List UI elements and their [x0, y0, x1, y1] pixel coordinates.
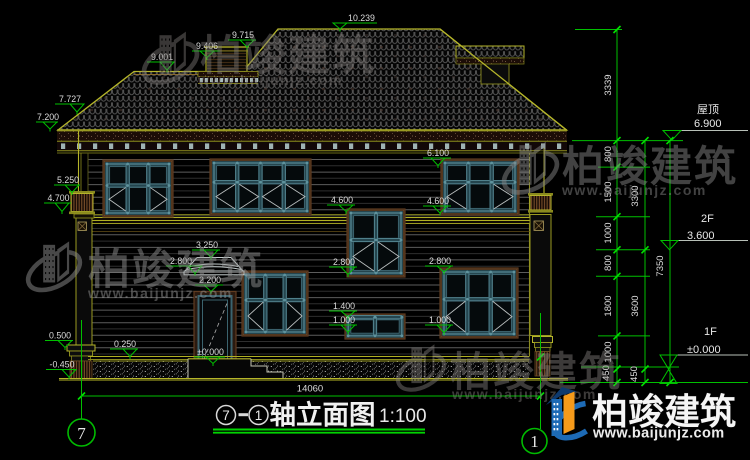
- svg-text:1: 1: [530, 432, 539, 451]
- svg-text:7.727: 7.727: [59, 94, 81, 104]
- svg-text:3600: 3600: [630, 295, 641, 316]
- svg-text:www.baijunjz.com: www.baijunjz.com: [87, 285, 233, 301]
- svg-text:450: 450: [629, 366, 640, 382]
- svg-text:-0.450: -0.450: [50, 359, 75, 369]
- svg-text:1:100: 1:100: [379, 406, 427, 427]
- svg-text:7: 7: [222, 408, 230, 423]
- svg-text:6.100: 6.100: [427, 148, 449, 158]
- svg-text:1800: 1800: [603, 295, 614, 316]
- svg-text:7.200: 7.200: [37, 112, 59, 122]
- svg-text:0.500: 0.500: [49, 330, 71, 340]
- svg-text:2F: 2F: [701, 213, 714, 225]
- svg-text:6.900: 6.900: [694, 118, 722, 130]
- svg-text:www.baijunjz.com: www.baijunjz.com: [592, 426, 725, 442]
- svg-text:2.800: 2.800: [429, 256, 451, 266]
- svg-text:1.000: 1.000: [333, 315, 355, 325]
- svg-text:14060: 14060: [297, 384, 323, 395]
- svg-text:800: 800: [603, 255, 614, 271]
- svg-text:4.600: 4.600: [427, 196, 449, 206]
- svg-text:1000: 1000: [603, 222, 614, 243]
- svg-text:1.400: 1.400: [333, 301, 355, 311]
- svg-text:1.000: 1.000: [429, 315, 451, 325]
- svg-text:10.239: 10.239: [348, 13, 375, 23]
- svg-text:4.700: 4.700: [47, 193, 69, 203]
- svg-text:1F: 1F: [704, 326, 717, 338]
- svg-text:4.600: 4.600: [331, 195, 353, 205]
- svg-text:1: 1: [255, 408, 263, 423]
- svg-text:www.baijunjz.com: www.baijunjz.com: [451, 386, 597, 402]
- svg-text:www.baijunjz.com: www.baijunjz.com: [561, 182, 707, 198]
- svg-text:0.250: 0.250: [114, 339, 136, 349]
- svg-text:7350: 7350: [655, 255, 666, 276]
- svg-text:7: 7: [77, 424, 86, 443]
- svg-text:5.250: 5.250: [57, 175, 79, 185]
- svg-text:轴立面图: 轴立面图: [270, 400, 376, 430]
- svg-text:2.800: 2.800: [333, 257, 355, 267]
- svg-text:±0.000: ±0.000: [687, 344, 721, 356]
- svg-text:3339: 3339: [603, 74, 614, 95]
- svg-text:www.baijunjz.com: www.baijunjz.com: [197, 72, 343, 88]
- svg-text:±0.000: ±0.000: [197, 347, 224, 357]
- svg-text:屋顶: 屋顶: [697, 103, 719, 116]
